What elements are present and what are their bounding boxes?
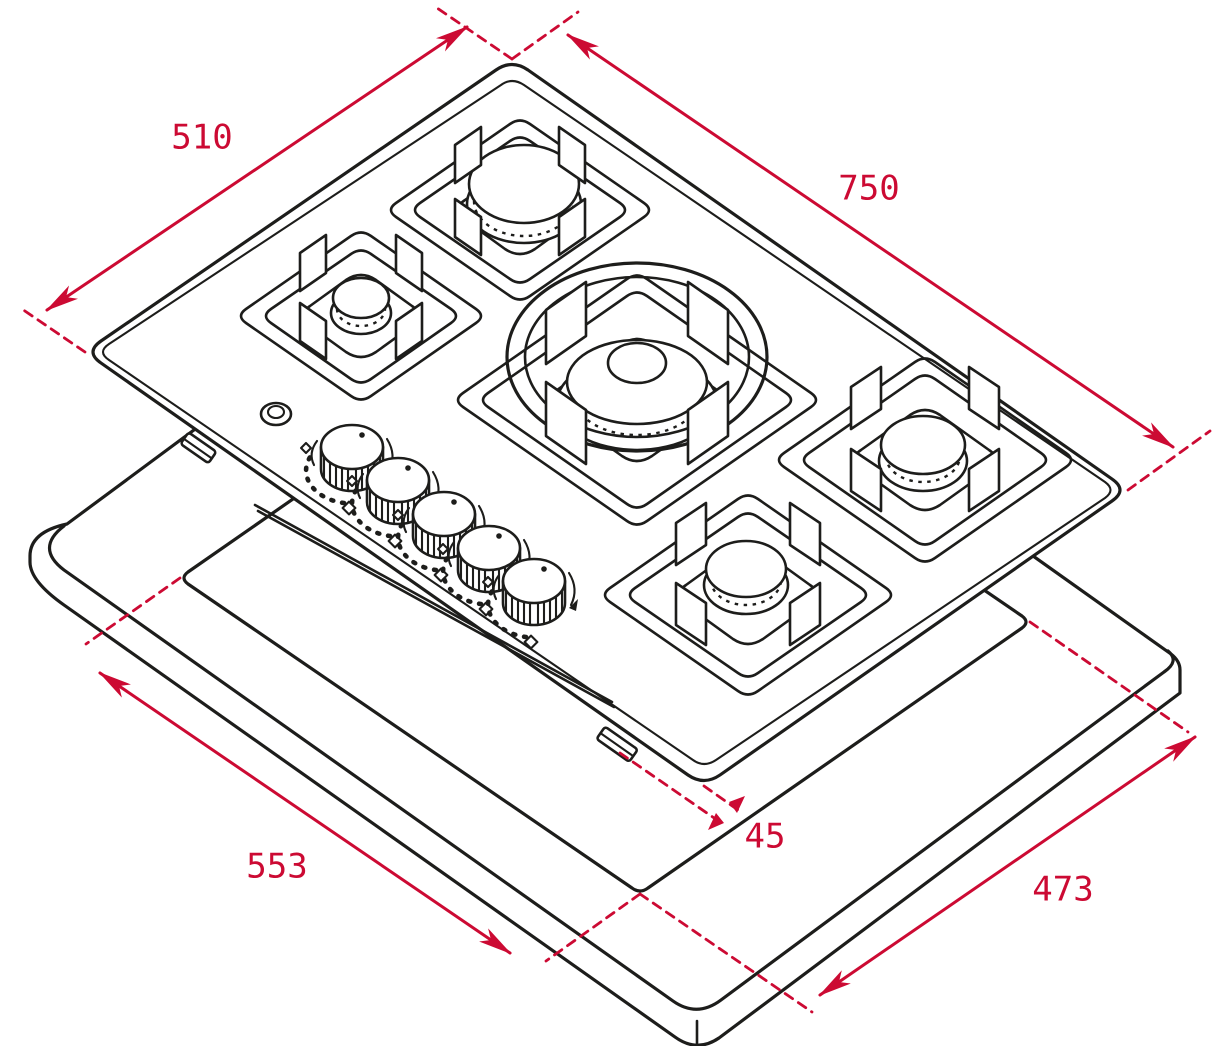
dimension-label: 553 <box>246 847 307 887</box>
ignition-button <box>261 403 291 425</box>
diagram-canvas: 510 750 553 473 45 <box>0 0 1220 1046</box>
dimension-label: 473 <box>1032 870 1093 910</box>
dimension-label: 510 <box>171 118 232 158</box>
installation-diagram: 510 750 553 473 45 <box>0 0 1220 1046</box>
dimension-label: 45 <box>745 817 786 857</box>
dimension-label: 750 <box>838 169 899 209</box>
